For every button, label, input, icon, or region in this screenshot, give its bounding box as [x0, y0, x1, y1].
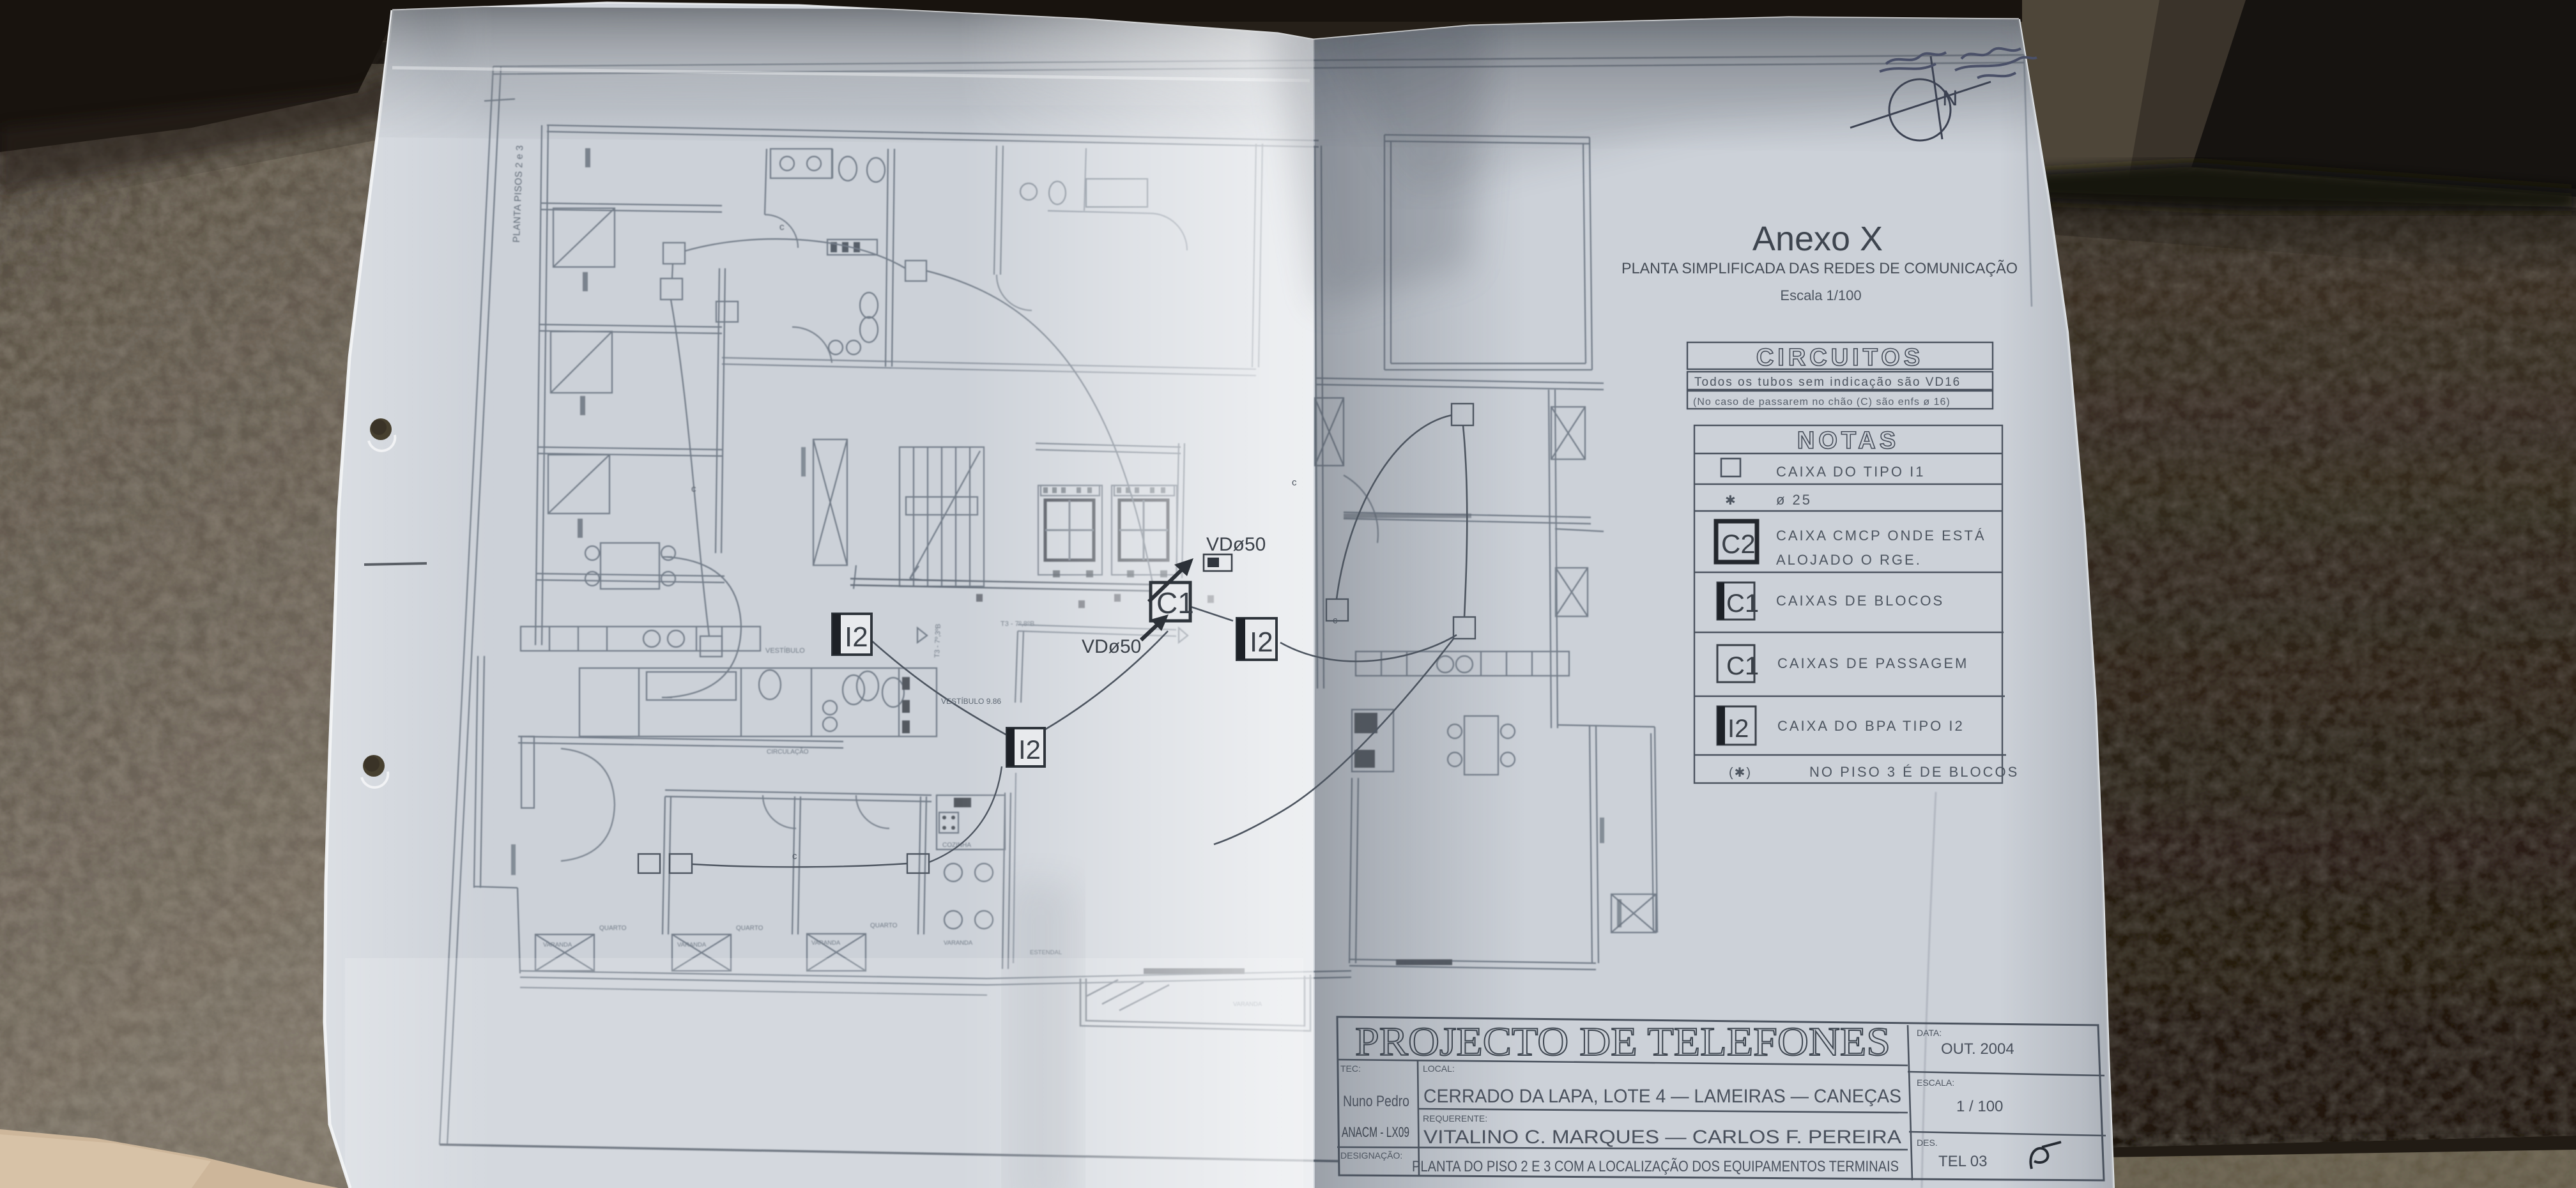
svg-text:VESTÍBULO 9.86: VESTÍBULO 9.86 [941, 696, 1001, 706]
svg-text:DATA:: DATA: [1917, 1028, 1942, 1038]
svg-text:DESIGNAÇÃO:: DESIGNAÇÃO: [1340, 1150, 1402, 1161]
svg-text:TEL 03: TEL 03 [1938, 1153, 1988, 1170]
svg-text:Todos os tubos sem indicação: Todos os tubos sem indicação são VD16 [1694, 376, 1961, 389]
svg-text:PROJECTO DE TELEFONES: PROJECTO DE TELEFONES [1355, 1019, 1890, 1064]
svg-text:CAIXA CMCP ONDE ESTÁ: CAIXA CMCP ONDE ESTÁ [1776, 528, 1986, 544]
svg-text:(✱): (✱) [1729, 766, 1752, 780]
svg-text:OUT. 2004: OUT. 2004 [1941, 1040, 2014, 1058]
svg-text:c: c [1333, 615, 1338, 626]
svg-text:PLANTA SIMPLIFICADA DAS REDES: PLANTA SIMPLIFICADA DAS REDES DE COMUNIC… [1621, 260, 2018, 277]
svg-text:VDø50: VDø50 [1206, 534, 1266, 555]
svg-text:ø 25: ø 25 [1776, 492, 1812, 508]
svg-text:CAIXAS DE PASSAGEM: CAIXAS DE PASSAGEM [1777, 655, 1968, 671]
svg-text:C1: C1 [1726, 652, 1759, 680]
svg-text:CIRCUITOS: CIRCUITOS [1756, 344, 1924, 371]
svg-text:I2: I2 [1250, 627, 1273, 658]
svg-text:PLANTA DO PISO 2 E 3 COM A LOC: PLANTA DO PISO 2 E 3 COM A LOCALIZAÇÃO … [1412, 1158, 1899, 1175]
svg-text:✱: ✱ [1725, 494, 1736, 508]
svg-text:ANACM - LX09: ANACM - LX09 [1342, 1124, 1409, 1140]
svg-text:c: c [792, 851, 797, 862]
svg-text:1 / 100: 1 / 100 [1956, 1098, 2003, 1115]
svg-text:c: c [779, 222, 785, 232]
svg-text:CERRADO DA LAPA, LOTE 4 — LAME: CERRADO DA LAPA, LOTE 4 — LAMEIRAS — CAN… [1423, 1086, 1901, 1107]
svg-text:QUARTO: QUARTO [736, 925, 763, 932]
svg-text:ESCALA:: ESCALA: [1917, 1078, 1954, 1088]
svg-text:CIRCULAÇÃO: CIRCULAÇÃO [767, 747, 809, 756]
svg-text:REQUERENTE:: REQUERENTE: [1423, 1113, 1487, 1123]
svg-text:Escala 1/100: Escala 1/100 [1780, 287, 1861, 303]
svg-text:I2: I2 [1018, 735, 1041, 765]
svg-text:C1: C1 [1726, 590, 1759, 618]
svg-text:N: N [1942, 86, 1958, 110]
svg-text:DES.: DES. [1917, 1138, 1938, 1148]
svg-text:VARANDA: VARANDA [543, 941, 572, 948]
svg-text:CAIXAS DE BLOCOS: CAIXAS DE BLOCOS [1776, 593, 1944, 609]
svg-text:VESTÍBULO: VESTÍBULO [765, 646, 805, 655]
svg-text:LOCAL:: LOCAL: [1423, 1063, 1455, 1074]
svg-text:I2: I2 [1728, 715, 1749, 743]
svg-text:NO PISO 3 É DE BLOCOS: NO PISO 3 É DE BLOCOS [1809, 764, 2019, 780]
svg-text:I2: I2 [845, 621, 868, 653]
svg-text:VARANDA: VARANDA [811, 940, 841, 947]
svg-text:T3 - 7º,3ºB: T3 - 7º,3ºB [933, 623, 942, 658]
svg-text:TEC:: TEC: [1340, 1063, 1361, 1074]
svg-text:QUARTO: QUARTO [870, 922, 898, 929]
svg-text:(No caso de passarem no chão: (No caso de passarem no chão (C) são e… [1693, 397, 1951, 407]
svg-text:VARANDA: VARANDA [677, 941, 707, 948]
svg-text:CAIXA DO TIPO I1: CAIXA DO TIPO I1 [1776, 464, 1925, 480]
svg-text:CAIXA DO BPA TIPO I2: CAIXA DO BPA TIPO I2 [1777, 718, 1965, 734]
svg-text:Anexo X: Anexo X [1752, 220, 1883, 258]
svg-text:VITALINO C. MARQUES — CARLOS F: VITALINO C. MARQUES — CARLOS F. PEREIRA [1423, 1127, 1901, 1148]
svg-text:QUARTO: QUARTO [599, 925, 627, 932]
svg-text:C2: C2 [1721, 529, 1756, 559]
svg-text:c: c [691, 484, 696, 494]
svg-text:c: c [1292, 477, 1297, 488]
svg-text:NOTAS: NOTAS [1797, 427, 1899, 454]
svg-text:VDø50: VDø50 [1082, 636, 1141, 657]
svg-text:ALOJADO O RGE.: ALOJADO O RGE. [1776, 552, 1922, 568]
svg-text:Nuno Pedro: Nuno Pedro [1343, 1093, 1409, 1110]
